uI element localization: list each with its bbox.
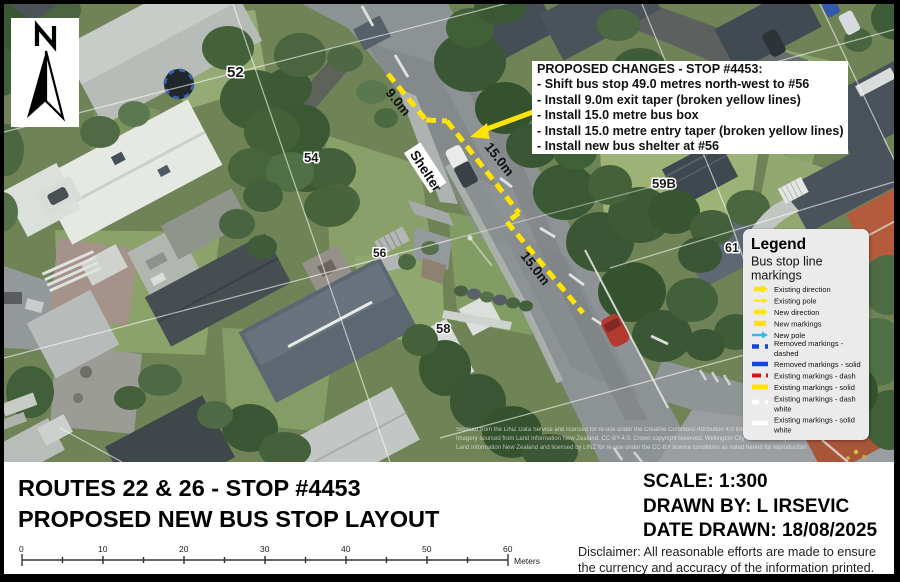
svg-text:50: 50 [422,544,432,554]
svg-text:61: 61 [725,241,739,255]
svg-text:Existing markings - dash: Existing markings - dash [774,372,856,381]
svg-text:20: 20 [179,544,189,554]
svg-text:40: 40 [341,544,351,554]
svg-text:white: white [773,426,792,435]
svg-text:52: 52 [227,64,244,81]
svg-text:10: 10 [98,544,108,554]
svg-text:0: 0 [19,544,24,554]
svg-text:Existing markings - solid: Existing markings - solid [774,383,855,392]
svg-text:Existing pole: Existing pole [774,297,817,306]
svg-text:Removed markings -: Removed markings - [774,339,844,348]
svg-text:58: 58 [436,321,450,336]
svg-text:30: 30 [260,544,270,554]
svg-text:56: 56 [373,246,387,260]
svg-text:Land Information New Zealand a: Land Information New Zealand and license… [456,445,806,451]
svg-text:white: white [773,405,792,414]
svg-text:Existing direction: Existing direction [774,285,831,294]
svg-text:Removed markings - solid: Removed markings - solid [774,360,861,369]
svg-text:60: 60 [503,544,513,554]
svg-text:Existing markings - solid: Existing markings - solid [774,416,855,425]
svg-text:markings: markings [751,269,802,283]
svg-text:New markings: New markings [774,320,822,329]
svg-text:54: 54 [304,150,319,165]
svg-text:Existing markings - dash: Existing markings - dash [774,395,856,404]
svg-text:Bus stop line: Bus stop line [751,255,823,269]
svg-text:dashed: dashed [774,349,799,358]
svg-text:59B: 59B [652,176,676,191]
svg-text:Legend: Legend [751,236,806,253]
svg-text:New direction: New direction [774,308,819,317]
svg-text:Meters: Meters [514,556,540,566]
